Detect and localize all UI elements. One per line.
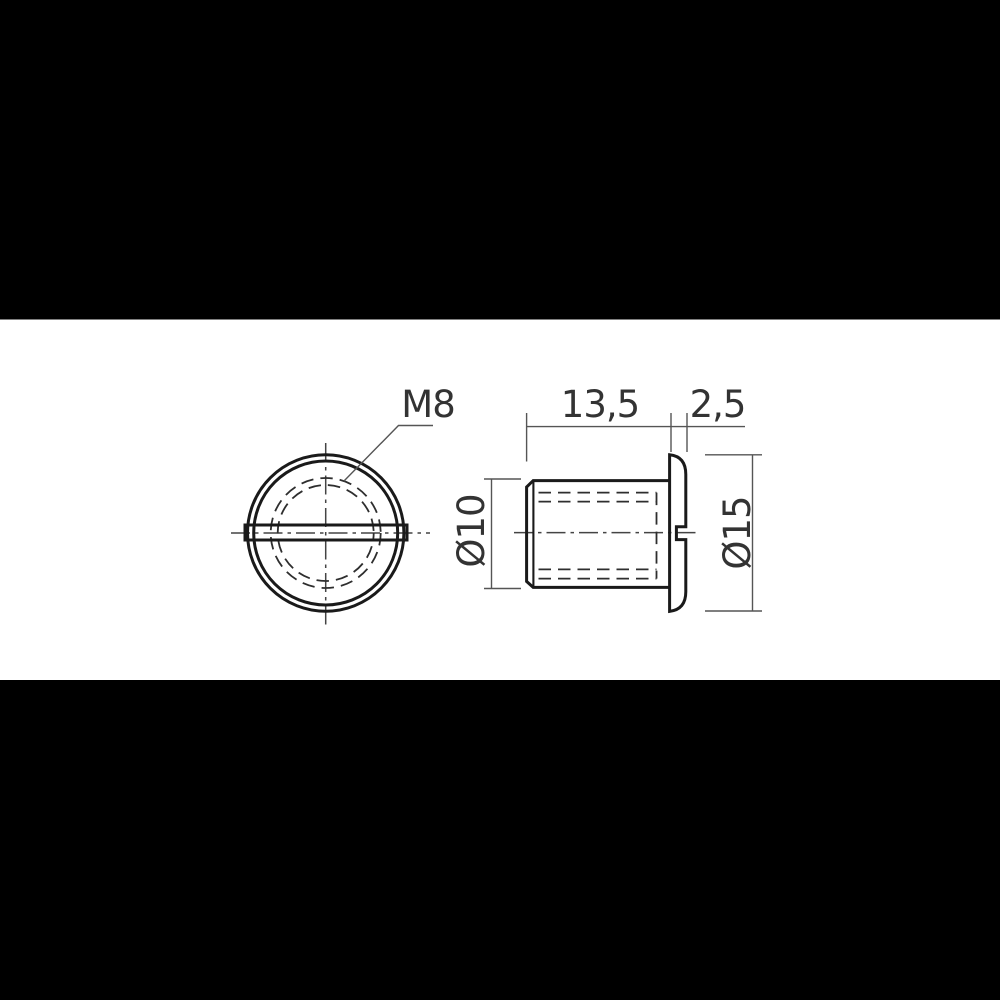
screenshot-stage: M8: [0, 0, 1000, 1000]
letterbox-bottom: [0, 680, 1000, 1000]
flange-diameter-label: Ø15: [716, 496, 759, 569]
drawing-paper: [0, 320, 1000, 681]
letterbox-top: [0, 0, 1000, 320]
body-diameter-label: Ø10: [450, 494, 493, 567]
body-length-label: 13,5: [561, 383, 639, 426]
flange-thickness-label: 2,5: [690, 383, 746, 426]
thread-label: M8: [401, 383, 454, 426]
